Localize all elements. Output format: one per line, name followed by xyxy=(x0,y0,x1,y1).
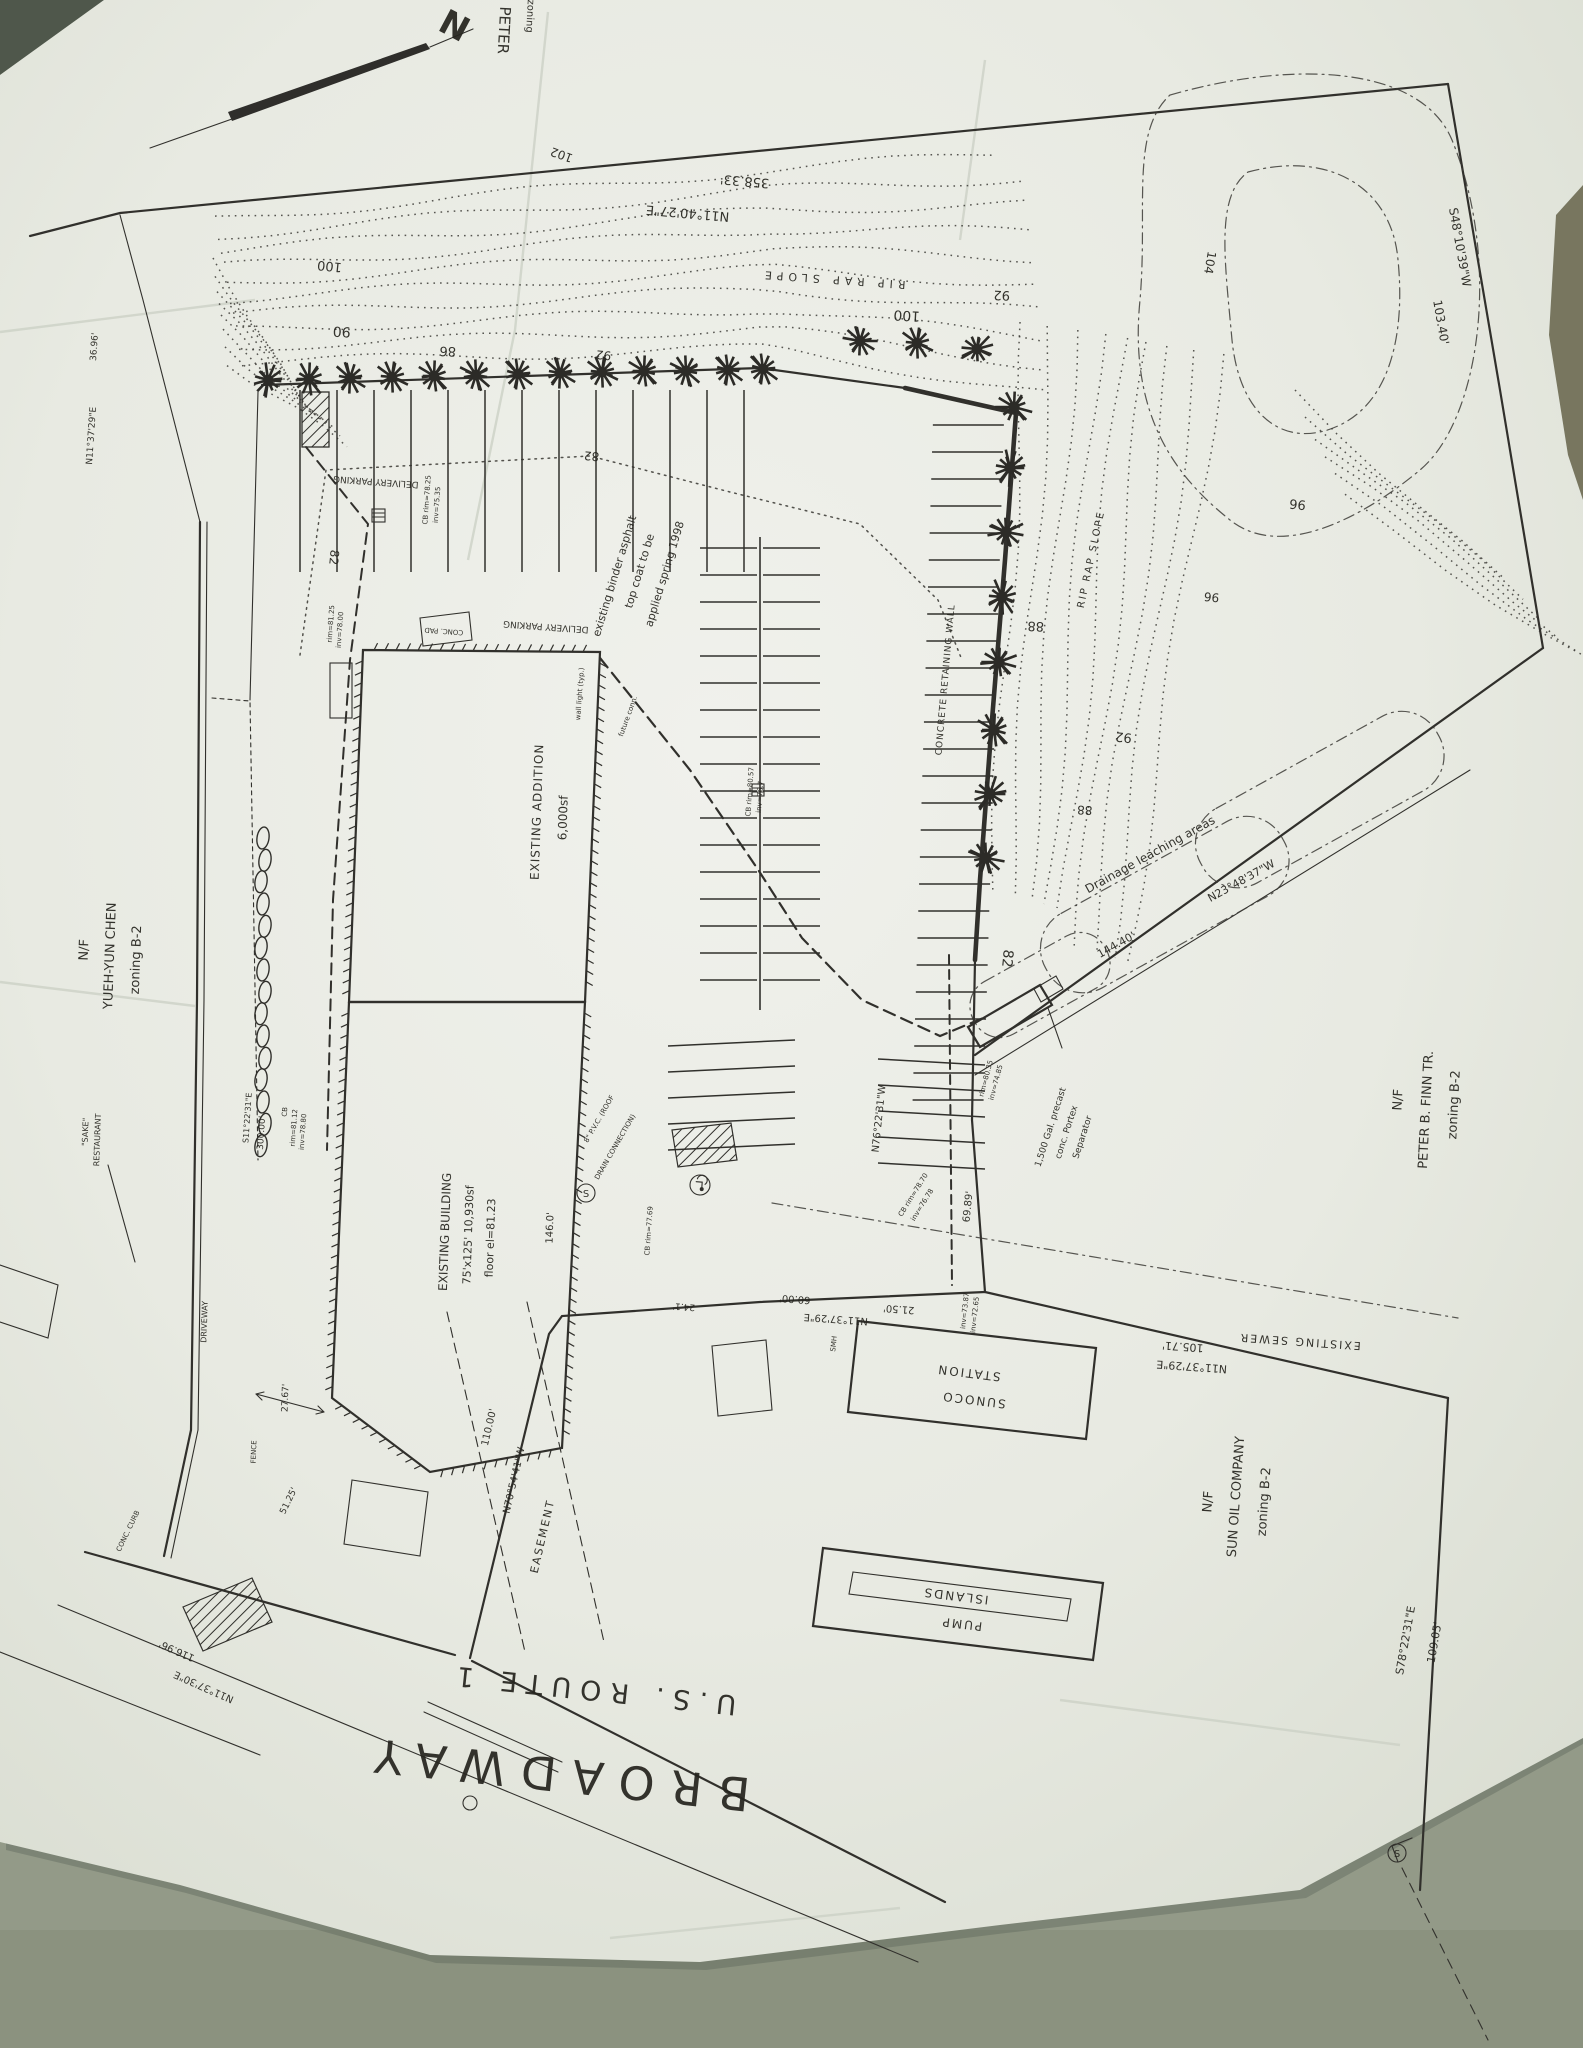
label-cut-zoning: zoning xyxy=(523,0,536,33)
label-c92c: 92 xyxy=(1115,728,1133,745)
label-c96a: 96 xyxy=(1289,495,1307,512)
label-c82a: 82 xyxy=(583,448,600,464)
label-addition2: 6,000sf xyxy=(555,794,571,840)
label-d2767: 27.67' xyxy=(281,1384,292,1413)
label-c88a: 88 xyxy=(1027,618,1044,634)
label-b6000: 60.00' xyxy=(779,1292,811,1305)
label-c88b: 88 xyxy=(1077,803,1093,818)
label-fence: FENCE xyxy=(250,1440,259,1463)
label-d3696: 36.96' xyxy=(89,332,101,361)
label-c100a: 100 xyxy=(893,306,921,323)
label-c96b: 96 xyxy=(1203,589,1220,605)
label-b241: 24.1' xyxy=(672,1300,695,1312)
label-smh: SMH xyxy=(829,1336,839,1352)
label-cb5a: CB xyxy=(281,1107,290,1117)
label-smanhole2: S xyxy=(1394,1849,1400,1860)
label-chen1: N/F xyxy=(77,939,93,961)
label-driveway: DRIVEWAY xyxy=(199,1301,209,1343)
label-chen3: zoning B-2 xyxy=(128,925,145,995)
walk-pad xyxy=(672,1123,737,1167)
label-sake1: "SAKE" xyxy=(81,1118,91,1147)
paper xyxy=(0,0,1583,1962)
label-c86: 86 xyxy=(439,343,456,359)
label-smanhole1: S xyxy=(583,1189,589,1200)
label-b2150: 21.50' xyxy=(883,1302,915,1315)
label-bldg3: floor el=81.23 xyxy=(483,1198,499,1277)
label-sake2: RESTAURANT xyxy=(92,1113,103,1166)
dumpster-pad xyxy=(302,392,329,447)
label-c90: 90 xyxy=(332,323,351,340)
label-c100b: 100 xyxy=(317,257,343,275)
scanned-site-plan-page: { "scan": { "background_color": "#939a88… xyxy=(0,0,1583,2048)
site-plan-svg: PETERzoningNN11°40'27"E358.33'1021001009… xyxy=(0,0,1583,2048)
label-c82c: 82 xyxy=(998,949,1016,968)
label-c92a: 92 xyxy=(595,347,612,363)
label-finn1: N/F xyxy=(1390,1089,1406,1111)
label-c82b: 82 xyxy=(326,549,342,566)
label-d1460: 146.0' xyxy=(544,1212,556,1244)
label-cut-peter: PETER xyxy=(494,6,514,54)
label-sun1: N/F xyxy=(1200,1490,1216,1513)
label-c92b: 92 xyxy=(993,287,1010,303)
